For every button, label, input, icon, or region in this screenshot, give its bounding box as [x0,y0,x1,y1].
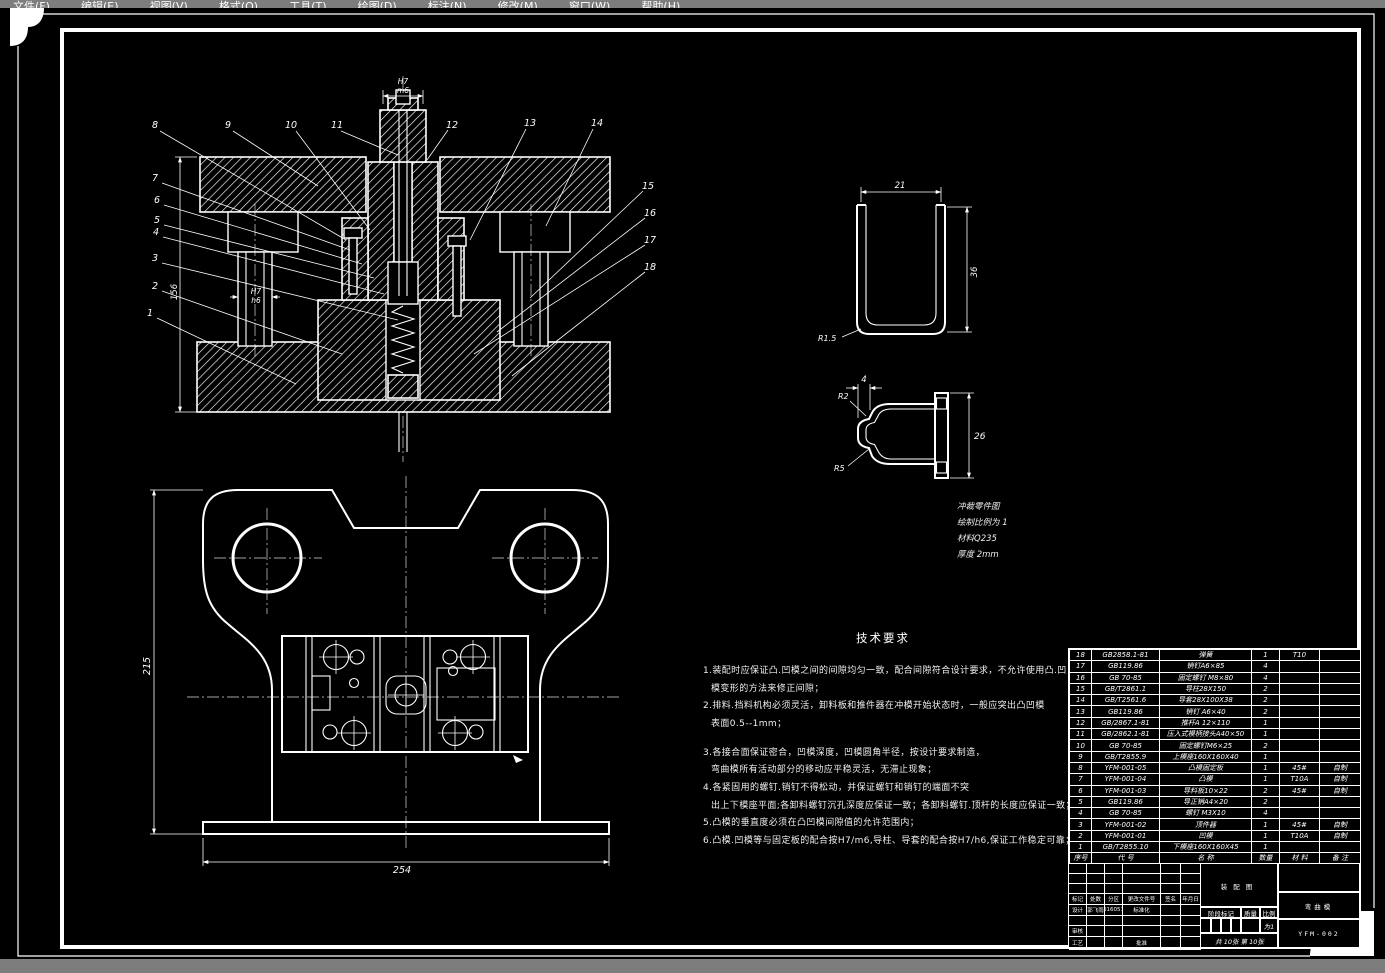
bom-cell: 18 [1070,650,1092,661]
upper-die-shoe-left [200,157,366,212]
stripper-screw-right [453,246,461,316]
die-shank [380,110,426,162]
radius-r2-text: R2 [838,392,849,401]
drawing-number: YFM-002 [1277,918,1361,949]
detail-view-channel: 21 36 R1.5 [818,181,980,343]
tb-standard-label: 标准化 [1123,905,1161,916]
dim-4-text: 4 [861,375,866,385]
balloon-14: 14 [591,118,603,129]
bom-cell [1280,752,1320,763]
stripper-screw-left-head [344,228,362,238]
bom-cell: 自制 [1320,786,1361,797]
tb-design-date: 20160517 [1105,905,1123,916]
bom-cell: 螺钉 M3X10 [1160,808,1252,819]
bom-cell [1280,797,1320,808]
bom-cell: 导料板10×22 [1160,786,1252,797]
tb-designer: 郭飞雨 [1087,905,1105,916]
bom-cell: 11 [1070,729,1092,740]
bom-cell: 销钉A6×85 [1160,661,1252,672]
tb-sheet-count: 共 10张 第 10张 [1200,932,1279,949]
menu-item-file[interactable]: 文件(F) [0,0,63,8]
bom-cell: 4 [1070,808,1092,819]
bom-cell: 顶件器 [1160,819,1252,830]
bom-cell: 导柱28X150 [1160,684,1252,695]
punch [388,262,418,304]
product-name: 弯曲模 [1277,891,1361,920]
bom-cell [1320,684,1361,695]
bom-cell [1320,752,1361,763]
menu-item-view[interactable]: 视图(V) [137,0,201,8]
upper-die-shoe-right [440,157,610,212]
tech-requirements-title: 技术要求 [856,630,910,646]
balloon-3: 3 [152,253,158,264]
bom-cell: GB/T2561.6 [1092,695,1160,706]
bottom-plug [388,375,418,398]
bom-cell: 上模座160X160X40 [1160,752,1252,763]
dim-26-text: 26 [974,432,986,442]
dim-156-text: 156 [170,283,180,300]
radius-r1-5-text: R1.5 [818,334,836,343]
balloon-12: 12 [446,120,458,131]
bom-cell: 15 [1070,684,1092,695]
bom-cell: 2 [1252,695,1280,706]
dim-36: 36 [947,207,980,332]
bom-cell: 推杆A 12×110 [1160,718,1252,729]
bushing-seat-left [228,212,298,252]
bom-cell: T10A [1280,774,1320,785]
drawing-type-title: 装配图 [1200,863,1279,908]
bom-cell: YFM-001-02 [1092,819,1160,830]
screw-hole [394,162,412,262]
dim-254-text: 254 [393,865,411,876]
bom-cell: 14 [1070,695,1092,706]
bom-cell: 1 [1070,842,1092,853]
tb-label-zone: 分区 [1105,894,1123,905]
bom-cell: GB/2862.1-81 [1092,729,1160,740]
bom-cell: GB119.86 [1092,797,1160,808]
note-line-2: 绘制比例为 1 [957,516,1008,528]
dim-21-text: 21 [895,181,906,191]
tech-line-4: 表面0.5--1mm； [711,716,786,729]
bom-cell: GB2858.1-81 [1092,650,1160,661]
bom-cell: 固定螺钉M6×25 [1160,740,1252,751]
tb-approve-label: 批准 [1123,937,1161,950]
bom-cell: 17 [1070,661,1092,672]
menu-item-dimension[interactable]: 标注(N) [415,0,480,8]
stripper-screw-right-head [448,236,466,246]
bom-cell [1280,706,1320,717]
radius-r5-text: R5 [834,464,845,473]
dim-36-text: 36 [970,266,980,277]
cap-outer [858,404,935,464]
menu-item-edit[interactable]: 编辑(E) [68,0,132,8]
tb-label-count: 处数 [1087,894,1105,905]
bom-cell: GB 70-85 [1092,740,1160,751]
balloon-10: 10 [285,120,297,131]
bom-cell: 1 [1252,831,1280,842]
fit-shank-lower-text: m6 [397,86,409,95]
dim-r2: R2 [838,392,866,416]
bom-cell: YFM-001-03 [1092,786,1160,797]
balloon-15: 15 [642,181,654,192]
status-bar [0,959,1385,973]
balloon-7: 7 [152,173,158,184]
bom-cell [1280,808,1320,819]
bom-cell [1280,842,1320,853]
bom-cell [1320,706,1361,717]
bom-cell: 5 [1070,797,1092,808]
menu-item-tools[interactable]: 工具(T) [276,0,339,8]
die-plate [282,636,528,752]
dim-r1-5: R1.5 [818,329,861,343]
menu-item-format[interactable]: 格式(O) [206,0,271,8]
channel-outer [857,205,945,334]
tb-design-label: 设计 [1069,905,1087,916]
bom-cell [1320,661,1361,672]
tech-line-6: 弯曲模所有活动部分的移动应平稳灵活，无滞止现象； [711,762,937,775]
bom-cell [1280,661,1320,672]
bom-cell: 导正销A4×20 [1160,797,1252,808]
bom-cell: 4 [1252,808,1280,819]
bom-cell: 自制 [1320,831,1361,842]
bom-cell: 45# [1280,819,1320,830]
bom-cell: 6 [1070,786,1092,797]
note-line-1: 冲裁零件图 [957,500,1000,512]
bom-cell: 9 [1070,752,1092,763]
menu-item-window[interactable]: 窗口(W) [556,0,623,8]
bom-cell: 1 [1252,650,1280,661]
bom-cell [1320,797,1361,808]
die-plate-dividers [306,636,500,752]
bom-cell: 固定螺钉 M8×80 [1160,673,1252,684]
bom-cell [1320,740,1361,751]
menu-item-modify[interactable]: 修改(M) [485,0,551,8]
page-curl-top-left-icon [10,8,44,46]
tb-label-sign: 签名 [1161,894,1181,905]
menu-bar: 文件(F) 编辑(E) 视图(V) 格式(O) 工具(T) 绘图(D) 标注(N… [0,0,1385,8]
bom-cell: 1 [1252,842,1280,853]
menu-item-draw[interactable]: 绘图(D) [345,0,410,8]
bom-cell: GB119.86 [1092,661,1160,672]
bom-cell: 2 [1252,740,1280,751]
bom-cell: 导套28X100X38 [1160,695,1252,706]
note-line-3: 材料Q235 [957,532,997,544]
bom-cell: 自制 [1320,819,1361,830]
bom-table: 18GB2858.1-81弹簧1T10 17GB119.86销钉A6×854 1… [1068,648,1361,865]
balloon-18: 18 [644,262,656,273]
balloon-11: 11 [331,120,343,131]
dim-4: 4 [846,375,882,418]
bom-cell: GB119.86 [1092,706,1160,717]
tb-label-change-doc: 更改文件号 [1123,894,1161,905]
balloon-16: 16 [644,208,656,219]
bom-cell: 2 [1252,786,1280,797]
cad-application-window: { "menu": { "items": ["文件(F)","编辑(E)","视… [0,0,1385,973]
bom-cell: 凹模 [1160,831,1252,842]
tech-line-7: 4.各紧固用的螺钉.销钉不得松动，并保证螺钉和销钉的端面不突 [703,780,969,793]
detail-view-cap: 4 R2 R5 26 [834,375,986,478]
note-line-4: 厚度 2mm [957,548,999,560]
tb-label-date: 年月日 [1181,894,1201,905]
bom-cell [1280,729,1320,740]
bom-cell: 弹簧 [1160,650,1252,661]
balloon-1: 1 [147,308,153,319]
title-block-revision-grid: 标记 处数 分区 更改文件号 签名 年月日 设计 郭飞雨 20160517 标准… [1068,863,1201,948]
balloon-5: 5 [154,215,160,226]
bom-c [1280,718,1320,729]
bom-cell: 12 [1070,718,1092,729]
tb-check-label: 审核 [1069,926,1087,937]
balloon-8: 8 [152,120,158,131]
bom-cell: 1 [1252,763,1280,774]
bushing-seat-right [500,212,570,252]
fit-shank-upper-text: H7 [398,77,409,86]
bom-cell: YFM-001-04 [1092,774,1160,785]
bom-cell [1320,695,1361,706]
bom-cell: 4 [1252,673,1280,684]
dim-26: 26 [950,393,986,478]
tech-line-5: 3.各接合面保证密合，凹模深度，凹模圆角半径，按设计要求制造， [703,745,985,758]
bom-cell: 1 [1252,718,1280,729]
balloon-13: 13 [524,118,536,129]
bom-cell: 3 [1070,819,1092,830]
bom-cell: 7 [1070,774,1092,785]
tb-process-label: 工艺 [1069,937,1087,950]
cap-inner [866,409,935,459]
balloon-9: 9 [225,120,231,131]
bom-cell: 13 [1070,706,1092,717]
bom-cell: YFM-001-05 [1092,763,1160,774]
tech-line-10: 6.凸模.凹模等与固定板的配合按H7/m6,导柱、导套的配合按H7/h6,保证工… [703,833,1075,846]
fit-pillar-upper-text: H7 [251,287,262,296]
bom-cell: 2 [1070,831,1092,842]
tech-line-2: 模变形的方法来修正间隙； [711,681,824,694]
bom-cell: 1 [1252,774,1280,785]
bom-cell: 16 [1070,673,1092,684]
balloon-6: 6 [154,195,160,206]
bom-cell: GB/2867.1-81 [1092,718,1160,729]
bom-cell [1280,740,1320,751]
tech-line-1: 1.装配时应保证凸.凹模之间的间隙均匀一致，配合间隙符合设计要求，不允许使用凸.… [703,663,1067,676]
center-pilot [386,676,426,714]
dim-215-text: 215 [142,657,153,675]
dim-21: 21 [861,181,941,202]
bom-cell: 2 [1252,797,1280,808]
bom-cell: 2 [1252,684,1280,695]
dim-156: 156 [170,157,197,412]
bom-cell: T10A [1280,831,1320,842]
cursor-arrow-icon [513,755,523,763]
bom-cell: YFM-001-01 [1092,831,1160,842]
bom-cell: 自制 [1320,774,1361,785]
bom-cell: 自制 [1320,763,1361,774]
tb-label-mark: 标记 [1069,894,1087,905]
bom-cell: 8 [1070,763,1092,774]
bom-cell: T10 [1280,650,1320,661]
bom-cell [1280,684,1320,695]
bom-cell: GB 70-85 [1092,808,1160,819]
plan-view: 215 254 [142,476,620,876]
bom-cell [1280,695,1320,706]
channel-inner [866,205,936,325]
bom-cell: 下模座160X160X45 [1160,842,1252,853]
tech-line-8: 出上下模座平面;各卸料螺钉沉孔深度应保证一致；各卸料螺钉.顶杆的长度应保证一致； [711,798,1075,811]
balloon-17: 17 [644,235,656,246]
bom-cell [1320,718,1361,729]
bom-cell: GB/T2861.1 [1092,684,1160,695]
fit-pillar-lower-text: h6 [251,296,261,305]
tech-line-9: 5.凸模的垂直度必须在凸凹模间隙值的允许范围内； [703,815,919,828]
bom-cell: GB/T2855.9 [1092,752,1160,763]
tech-line-3: 2.排料.挡料机构必须灵活，卸料板和推件器在冲模开始状态时，一般应突出凸凹模 [703,698,1045,711]
bom-cell: GB 70-85 [1092,673,1160,684]
balloon-2: 2 [152,281,158,292]
bom-cell [1320,842,1361,853]
bom-cell [1320,808,1361,819]
bom-cell: 压入式模柄接头A40×50 [1160,729,1252,740]
bom-cell: GB/T2855.10 [1092,842,1160,853]
bom-cell: 10 [1070,740,1092,751]
die-holder-outline [203,490,608,822]
bom-cell [1320,673,1361,684]
bom-cell: 1 [1252,819,1280,830]
bom-cell: 4 [1252,661,1280,672]
bom-cell: 45# [1280,763,1320,774]
assembly-section-view: 156 H7 m6 H7 h6 [147,76,656,462]
bom-cell: 45# [1280,786,1320,797]
menu-item-help[interactable]: 帮助(H) [628,0,693,8]
dim-r5: R5 [834,449,869,473]
title-block: 标记 处数 分区 更改文件号 签名 年月日 设计 郭飞雨 20160517 标准… [1068,863,1359,947]
dim-215: 215 [142,490,203,834]
bom-cell: 1 [1252,729,1280,740]
bom-cell [1320,729,1361,740]
bom-cell: 销钉 A6×40 [1160,706,1252,717]
bom-cell: 1 [1252,752,1280,763]
bom-cell: 凸模固定板 [1160,763,1252,774]
bom-cell [1320,650,1361,661]
bom-cell: 凸模 [1160,774,1252,785]
balloon-4: 4 [153,227,159,238]
bom-cell: 2 [1252,706,1280,717]
bom-cell [1280,673,1320,684]
